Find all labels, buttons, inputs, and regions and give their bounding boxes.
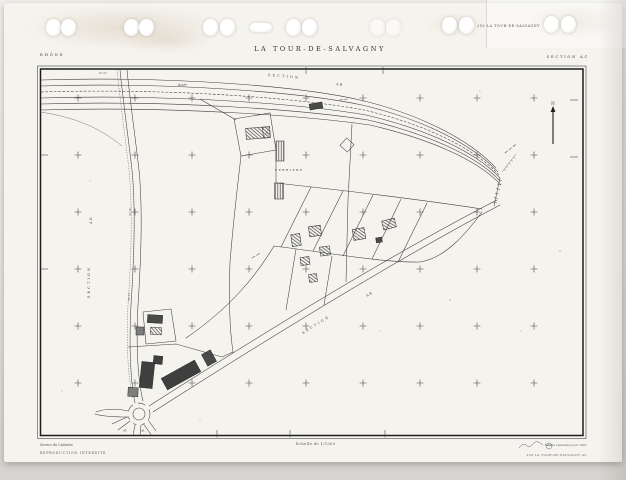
north-label: N bbox=[551, 101, 555, 106]
north-arrow: N bbox=[551, 101, 556, 144]
grid-crosses bbox=[75, 95, 538, 387]
cadastral-map: N SECTION AB SECTION AD SECTION AB Route… bbox=[0, 0, 626, 480]
copyright-notice: REPRODUCTION INTERDITE bbox=[40, 451, 106, 455]
micro-text-route bbox=[340, 99, 348, 100]
roads bbox=[41, 70, 516, 412]
issuer-label: Service du Cadastre bbox=[40, 443, 73, 447]
section-west-code: AD bbox=[89, 216, 93, 225]
section-top-code: AB bbox=[335, 82, 344, 87]
section-west-word: SECTION bbox=[87, 266, 91, 298]
map-labels: SECTION AB SECTION AD SECTION AB Route F… bbox=[87, 73, 374, 432]
micro-text-cr bbox=[505, 145, 516, 153]
left-road-east bbox=[127, 70, 143, 401]
route-label: Route bbox=[177, 83, 187, 88]
border-ticks bbox=[41, 67, 578, 438]
scale-label: Echelle de 1/1000 bbox=[296, 442, 336, 446]
scanned-cadastral-sheet: RHÔNE LA TOUR-DE-SALVAGNY SECTION AC 250… bbox=[0, 0, 626, 480]
sheet-id: 250 LA TOUR-DE-SALVAGNY AC bbox=[470, 453, 587, 457]
lieu-dit-label: FERRIERE bbox=[275, 168, 304, 172]
section-south-code: AB bbox=[365, 291, 374, 299]
junction-stub bbox=[494, 178, 500, 206]
map-frame bbox=[38, 66, 587, 439]
footpath-dotted bbox=[117, 70, 133, 398]
buildings bbox=[128, 102, 397, 397]
dust bbox=[62, 91, 561, 422]
section-top-word: SECTION bbox=[268, 73, 300, 80]
micro-text-avenue bbox=[252, 254, 260, 258]
adjacent-sheet-left: AY bbox=[122, 429, 127, 433]
avenue-lower bbox=[153, 205, 500, 412]
adjacent-sheet-right: AL bbox=[140, 429, 145, 433]
revision-note: Feuille remaniée pour 1981 bbox=[500, 443, 587, 447]
